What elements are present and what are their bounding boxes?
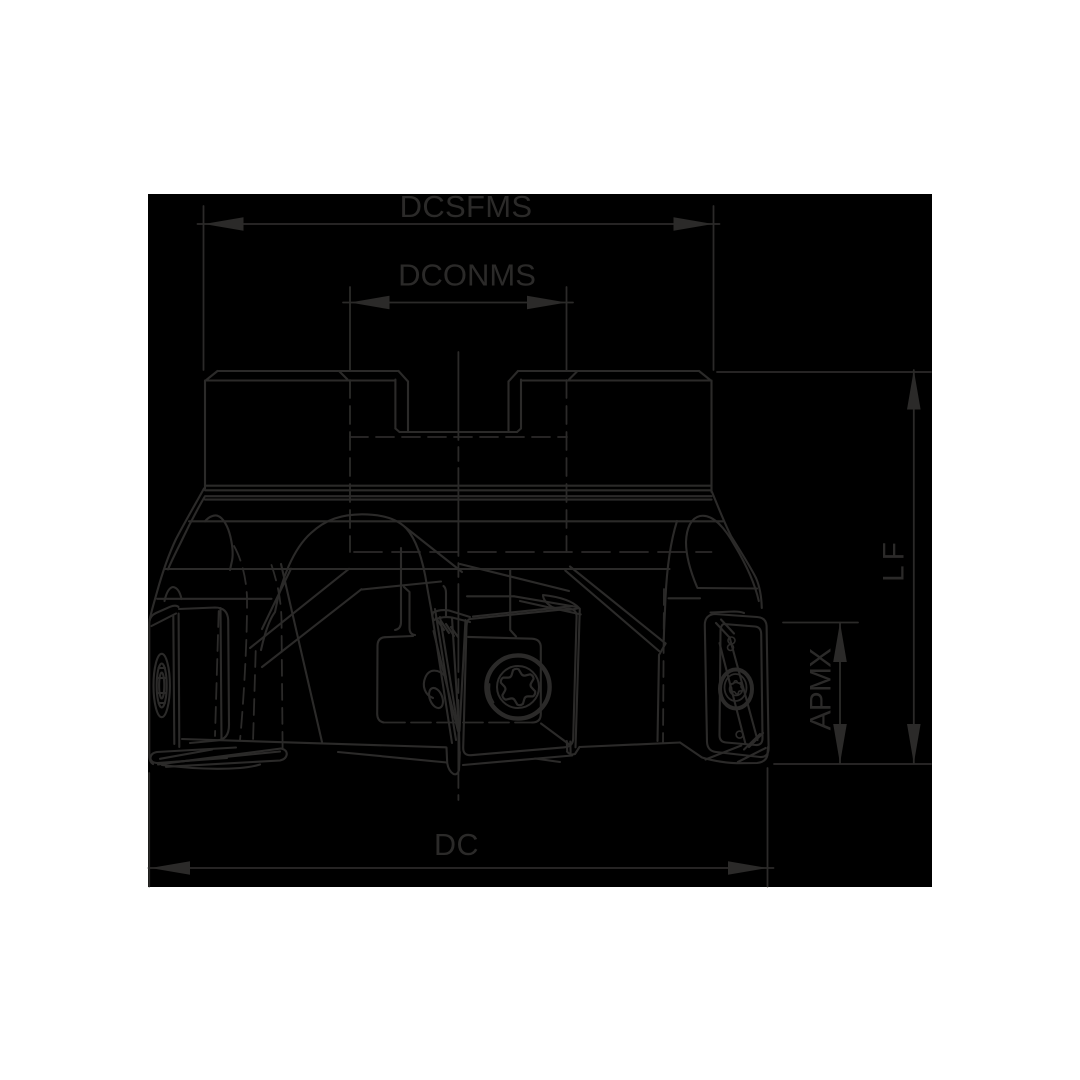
svg-text:APMX: APMX <box>805 648 838 731</box>
svg-text:DCSFMS: DCSFMS <box>400 189 533 224</box>
svg-text:DCONMS: DCONMS <box>398 258 536 293</box>
svg-text:LF: LF <box>878 537 911 582</box>
svg-text:DC: DC <box>434 828 479 862</box>
